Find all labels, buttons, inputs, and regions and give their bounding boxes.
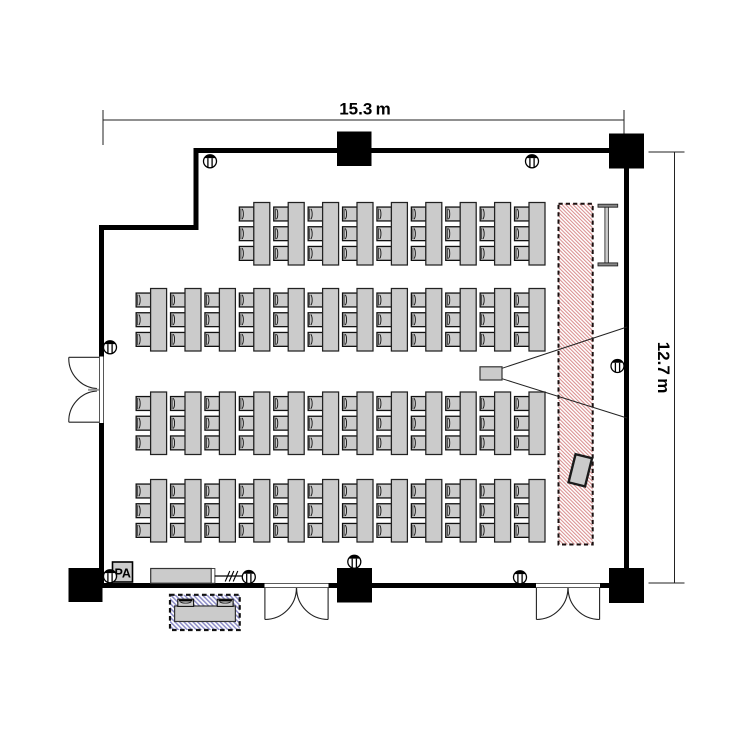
svg-text:12.7 m: 12.7 m xyxy=(654,342,673,394)
svg-text:15.3 m: 15.3 m xyxy=(339,100,391,119)
svg-text:PA: PA xyxy=(114,567,130,581)
